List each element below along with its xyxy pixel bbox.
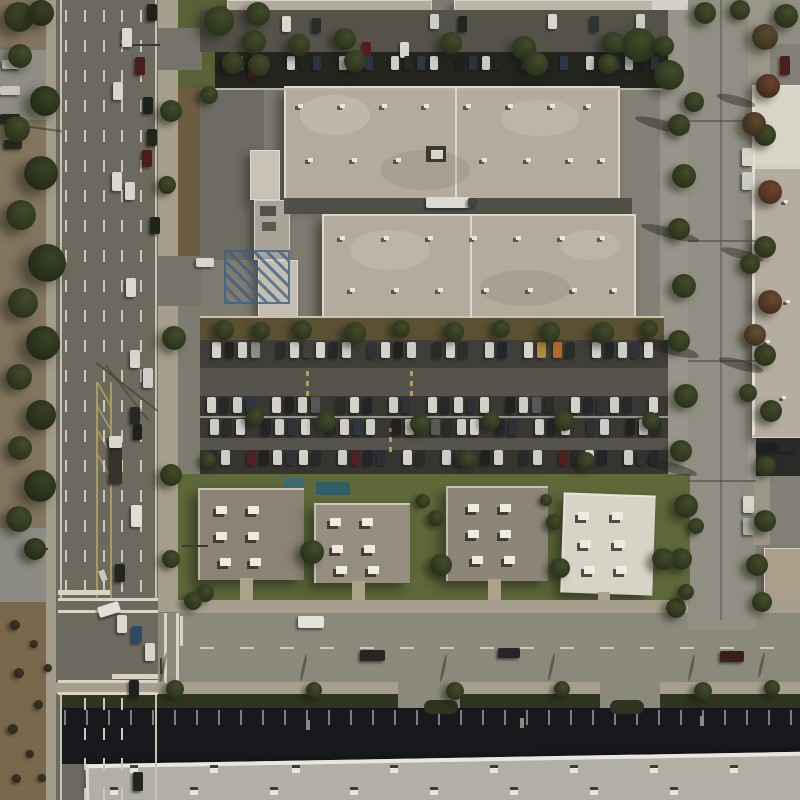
roof-vent [394,288,399,292]
lot-divider-line [200,416,668,418]
ped-dash-lot [410,366,413,396]
roof-vent [350,288,355,292]
ped-dash-lot [306,366,309,396]
tree [8,436,32,460]
car [147,4,157,21]
roof-vent [382,104,387,108]
tree [10,620,20,630]
car [221,450,230,465]
hvac-unit [216,532,227,540]
hvac-unit [500,504,511,512]
car [571,397,580,413]
hvac-unit [584,566,595,574]
car [338,450,347,465]
tree [458,450,476,468]
roof-vent [438,288,443,292]
tree [666,598,686,618]
car [285,397,294,413]
car [586,56,594,70]
roof-vent [482,158,487,162]
tree [416,494,430,508]
car [290,342,299,358]
car [220,397,229,413]
hvac-unit [616,566,627,574]
tree [730,0,750,20]
car [545,397,554,413]
tree [688,518,704,534]
road-edge-line [155,694,157,800]
satellite-scene[interactable] [0,0,800,800]
tree [674,494,698,518]
tree [754,236,776,258]
car [428,397,437,413]
car [351,450,360,465]
tree [24,538,46,560]
tree [184,592,202,610]
car [610,397,619,413]
tree [672,164,696,188]
hvac-unit [250,558,261,566]
hvac-unit [468,530,479,538]
roof-vent [516,236,521,240]
car [299,450,308,465]
crosswalk-south [58,692,158,695]
tree [410,414,430,434]
roof-vent [508,104,513,108]
car [758,442,776,452]
car [498,342,507,358]
car [392,419,401,435]
car [509,419,518,435]
car [130,407,140,424]
roof-vent [782,396,786,399]
tree [4,116,30,142]
stop-bar-north [58,590,110,595]
car [298,397,307,413]
roof-vent [340,104,345,108]
hvac-unit [336,566,347,574]
lamp-post [700,716,704,726]
tree [430,554,452,576]
hvac-unit [216,506,227,514]
tree [546,514,562,530]
path-office-1 [240,578,253,602]
pool-2 [316,482,350,495]
tree [344,50,366,72]
car [494,450,503,465]
tree [200,452,216,468]
car [133,772,143,791]
car [126,278,136,297]
tree [622,28,656,62]
car [365,56,373,70]
tree [288,34,310,56]
skylight [292,768,300,773]
tree [752,592,772,612]
tree [598,54,618,74]
roof-vent [784,200,788,203]
hvac-unit [472,556,483,564]
car [592,342,601,358]
tree [12,774,21,783]
tree [492,320,510,338]
car [313,56,321,70]
tree [764,680,780,696]
lamp-post [520,718,524,728]
car [649,397,658,413]
tree [754,344,776,366]
car [316,342,325,358]
car [312,18,321,33]
hvac-unit [612,512,623,520]
car [143,97,153,114]
car [298,616,324,628]
car [364,450,373,465]
car [340,419,349,435]
tree [200,86,218,104]
car [275,419,284,435]
car [236,419,245,435]
car [225,342,234,358]
car [337,397,346,413]
roof-vent [572,288,577,292]
hvac-unit [368,566,379,574]
car [207,397,216,413]
signal-mast-arm [182,545,208,547]
lot-aisle-2 [200,438,668,450]
hvac-unit [580,540,591,548]
car [590,16,599,32]
car [778,442,796,452]
tree [694,682,712,700]
tree [14,668,24,678]
car [286,450,295,465]
tree [26,400,56,430]
car [142,150,152,167]
tree [306,682,322,698]
skylight [190,790,198,795]
car [147,129,157,146]
lane-dash [140,0,142,592]
annex-a [250,150,280,200]
office-building-3 [446,486,548,581]
tree [577,452,595,470]
tree [670,440,692,462]
skylight [110,790,118,795]
car [631,342,640,358]
tree [756,456,776,476]
roof-vent [560,236,565,240]
car [350,397,359,413]
car [117,615,127,633]
car [416,450,425,465]
tree [428,510,444,526]
car [780,56,790,75]
tree [678,584,694,600]
hvac-unit [330,518,341,526]
car [495,56,503,70]
tree [668,218,690,240]
hvac-unit [364,545,375,553]
roof-vent [586,104,591,108]
tree [166,680,184,698]
skylight [390,768,398,773]
car [520,450,529,465]
car [260,450,269,465]
car [288,419,297,435]
car [403,450,412,465]
road-edge-line [60,694,62,800]
car [498,648,520,658]
car [454,397,463,413]
roof-vent [484,288,489,292]
roof-vent [428,236,433,240]
skylight [670,790,678,795]
road2-seam [688,480,756,482]
car [532,397,541,413]
car [598,450,607,465]
car [300,56,308,70]
tree [300,540,324,564]
car [312,450,321,465]
roof-mottle [300,95,370,135]
car [113,82,123,100]
roof-vent [528,288,533,292]
car [458,16,467,32]
roof-seam [470,214,472,318]
roof-vent [384,236,389,240]
tree [28,244,66,282]
lane-dash [103,0,105,592]
lane-dash [103,694,105,800]
hvac-unit [614,540,625,548]
tree [440,32,462,54]
tree [222,52,244,74]
car [637,450,646,465]
car [329,342,338,358]
tree [674,384,698,408]
car [247,450,256,465]
road2-apron [688,598,756,630]
tree [668,114,690,136]
car [470,419,479,435]
car [524,342,533,358]
tree [742,112,766,136]
stalls-r1-south [741,480,754,550]
crosswalk-east [176,613,179,683]
sidewalk-east [158,0,178,612]
car [431,419,440,435]
tree [482,412,500,430]
car [650,450,659,465]
car [559,450,568,465]
tree [246,408,264,426]
car [506,397,515,413]
stop-bar-south [112,674,158,679]
tree [740,254,760,274]
car [535,419,544,435]
tree [24,470,56,502]
tree [654,36,674,56]
car [430,14,439,29]
roof-vent [612,288,617,292]
tree [758,180,782,204]
tree [344,322,366,344]
tree [316,412,336,432]
hvac-unit [220,558,231,566]
skylight [210,768,218,773]
tree [550,558,570,578]
hvac-unit [362,518,373,526]
car [272,397,281,413]
tree [744,324,766,346]
car [277,342,286,358]
hvac-unit [332,545,343,553]
median-line [96,382,98,598]
planter-curb [200,316,664,318]
car [553,342,562,358]
car [468,198,477,207]
car [301,419,310,435]
roof-vent [526,158,531,162]
car [210,419,219,435]
office-building-2 [314,503,410,583]
car [457,419,466,435]
accessible-stall-hatch [226,252,288,302]
car [122,28,132,47]
car [566,342,575,358]
hvac-unit [248,532,259,540]
car [133,424,142,440]
car [600,419,609,435]
top-building-c [652,0,688,10]
car [145,643,155,661]
tree [652,548,674,570]
car [537,342,546,358]
skylight [430,790,438,795]
hvac-unit [504,556,515,564]
roof-vent [568,158,573,162]
tree [158,176,176,194]
crosswalk-east [164,613,167,683]
car [150,217,160,234]
tree [242,30,266,54]
roof-vent [424,104,429,108]
hvac-unit [248,506,259,514]
median-line [110,382,112,598]
car [135,57,145,75]
crosswalk-north [58,598,158,601]
car [481,450,490,465]
car [112,172,122,191]
car [389,397,398,413]
car [426,197,470,208]
car [636,14,645,29]
car [482,56,490,70]
car [623,397,632,413]
tree [26,750,34,758]
car [394,342,403,358]
car [311,397,320,413]
car [342,342,351,358]
tree [694,2,716,24]
car [391,56,399,70]
car [303,342,312,358]
car [469,56,477,70]
car [273,450,282,465]
driveway-north [158,28,202,70]
tree [754,510,776,532]
car [547,56,555,70]
car [196,258,214,267]
tree [246,2,270,26]
car [624,450,633,465]
car [131,505,142,527]
tree [6,200,36,230]
car [626,419,635,435]
roof-vent [298,104,303,108]
car [456,56,464,70]
lane-dash [84,694,86,800]
tree [592,322,614,344]
car [360,650,385,661]
tree [392,320,410,338]
tree [162,550,180,568]
tree [38,774,46,782]
car [560,56,568,70]
car [132,626,142,643]
car [618,342,627,358]
car [353,419,362,435]
car [430,56,438,70]
tree [554,411,574,431]
tree [739,384,757,402]
roof-vent [766,340,770,343]
roof-vent [600,236,605,240]
tree [252,322,270,340]
car [742,172,753,190]
tree [752,24,778,50]
car [366,419,375,435]
hvac-unit [578,512,589,520]
car [433,342,442,358]
tree [8,724,18,734]
tree [30,86,60,116]
roof-mottle [350,230,430,270]
roof-vent [600,158,605,162]
car [212,342,221,358]
crosswalk-south [58,680,158,683]
car [533,450,542,465]
car [402,397,411,413]
tree [540,494,552,506]
car [743,496,754,513]
tree [248,54,270,76]
lane-dash [65,0,67,592]
roof-vent [340,236,345,240]
tree [760,400,782,422]
skylight [730,768,738,773]
lane-dash [121,694,123,800]
hvac-unit [468,504,479,512]
tree [446,682,464,700]
car [109,436,122,448]
lot-aisle-1 [200,368,668,396]
car [605,342,614,358]
car [444,419,453,435]
tree [6,364,32,390]
road-edge-line [60,0,62,598]
